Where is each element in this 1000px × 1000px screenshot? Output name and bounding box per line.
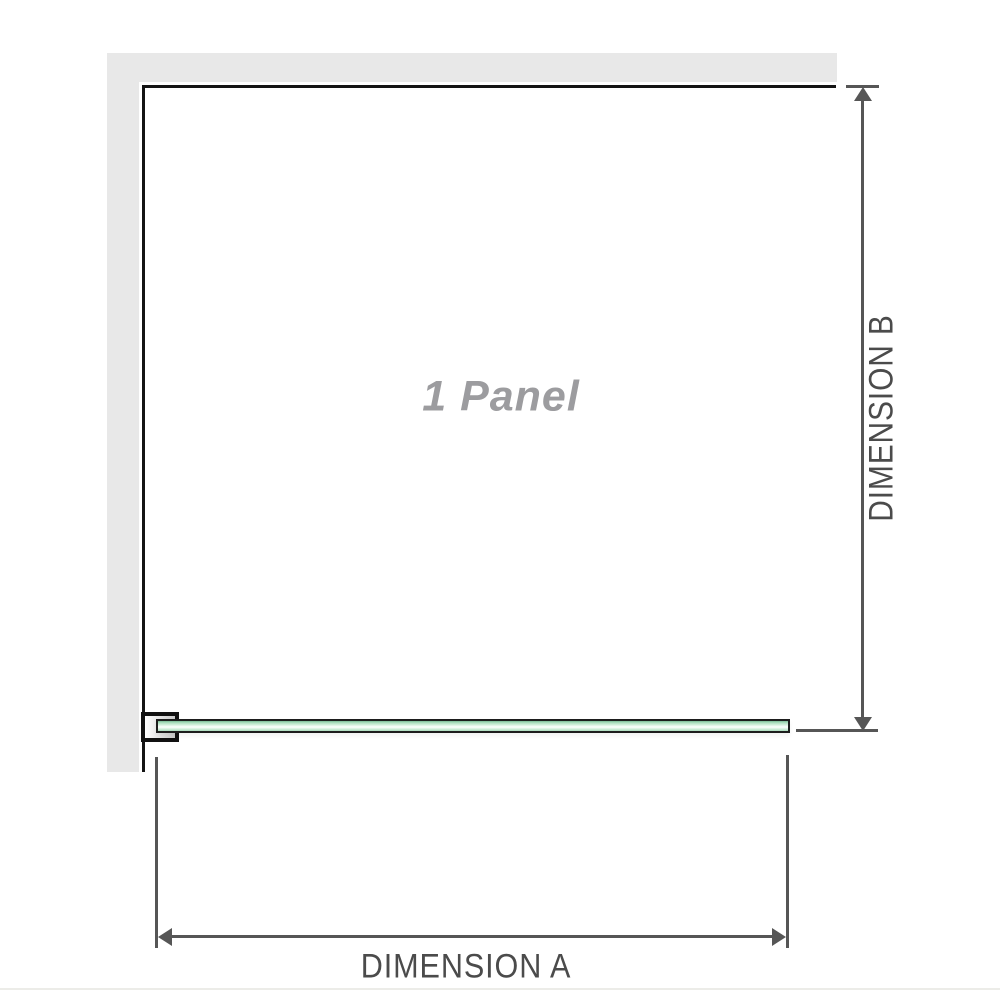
wall-left-band [107, 53, 139, 772]
page-bottom-rule [0, 988, 1000, 990]
dimension-a-arrow-right-icon [772, 928, 786, 946]
panel-title: 1 Panel [422, 373, 580, 422]
wall-top-band [107, 53, 837, 82]
panel-top-edge [142, 85, 836, 88]
dimension-b-arrow-down-icon [854, 717, 872, 731]
dimension-a-line [171, 935, 774, 938]
glass-panel-bar [156, 719, 790, 733]
dimension-b-arrow-up-icon [854, 87, 872, 101]
dimension-a-label: DIMENSION A [361, 948, 572, 987]
dimension-a-extension-left [155, 757, 158, 948]
dimension-a-arrow-left-icon [158, 928, 172, 946]
dimension-b-label: DIMENSION B [863, 314, 902, 522]
panel-left-edge [142, 85, 145, 772]
dimension-a-extension-right [786, 755, 789, 948]
diagram-canvas: 1 Panel DIMENSION B DIMENSION A [0, 0, 1000, 1000]
